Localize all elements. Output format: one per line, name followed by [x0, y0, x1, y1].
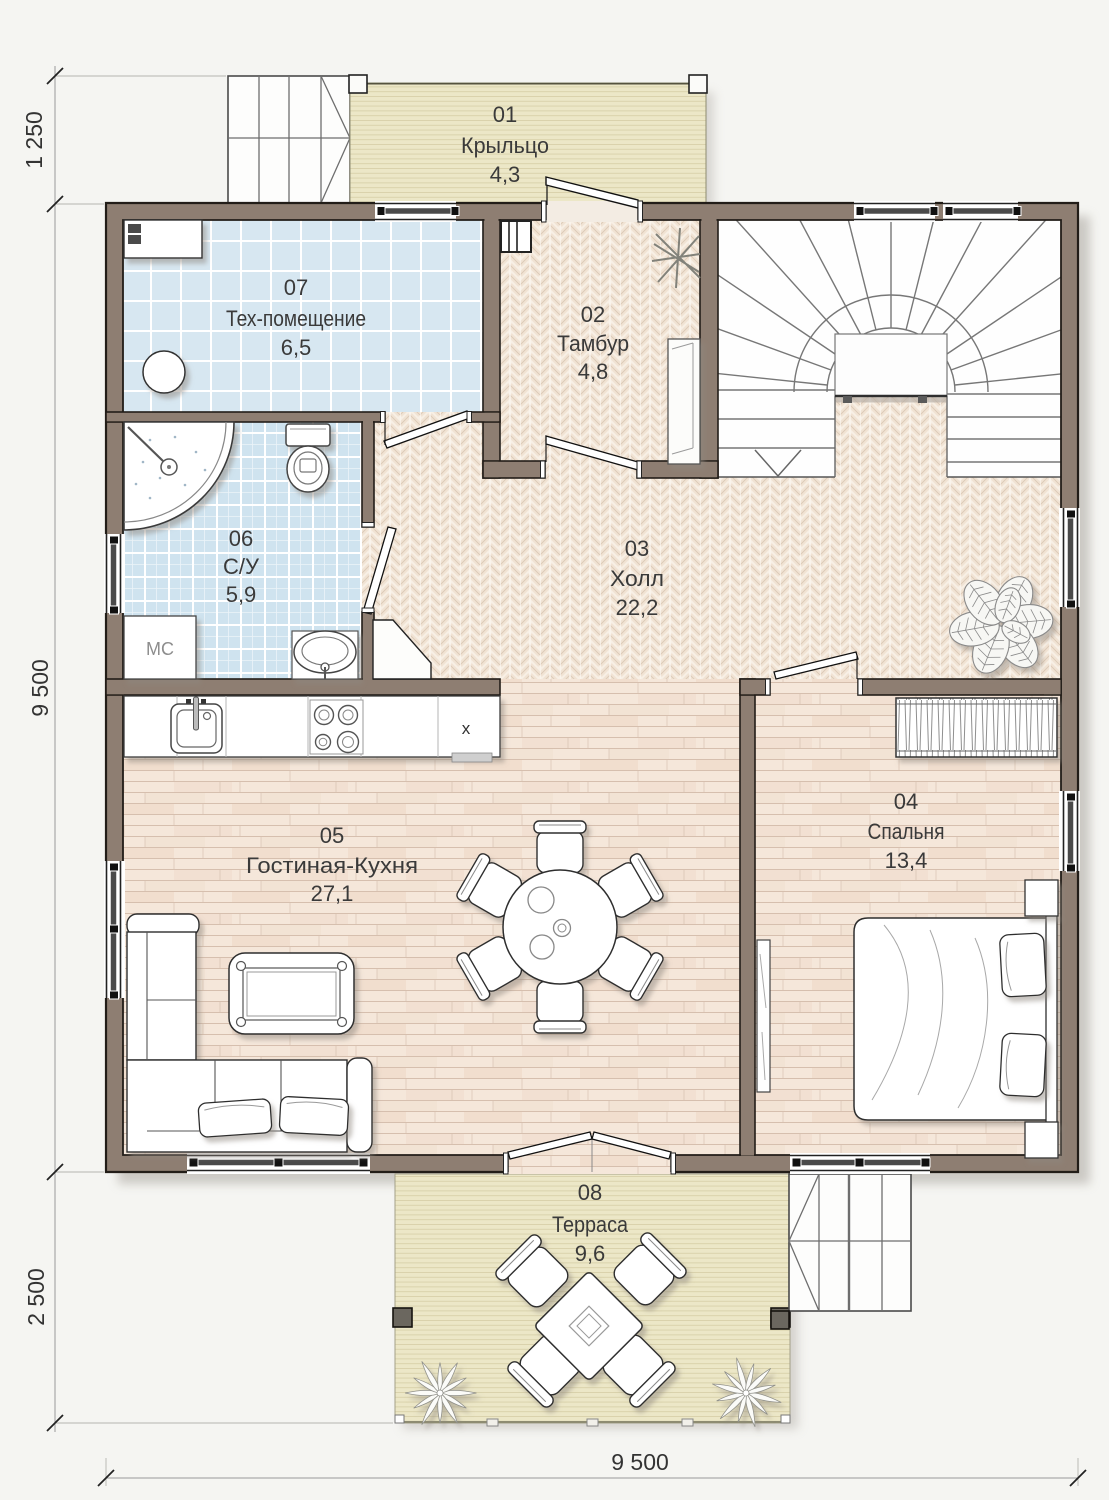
- svg-text:4,3: 4,3: [490, 162, 521, 187]
- svg-text:01: 01: [493, 102, 517, 127]
- svg-text:9,6: 9,6: [575, 1241, 606, 1266]
- svg-text:Холл: Холл: [610, 566, 664, 591]
- svg-text:9 500: 9 500: [611, 1449, 669, 1475]
- svg-text:04: 04: [894, 789, 918, 814]
- svg-text:05: 05: [320, 823, 344, 848]
- svg-text:Тамбур: Тамбур: [557, 331, 629, 356]
- svg-text:С/У: С/У: [223, 554, 260, 579]
- svg-text:22,2: 22,2: [616, 595, 659, 620]
- svg-text:Тех-помещение: Тех-помещение: [226, 306, 366, 331]
- svg-text:13,4: 13,4: [885, 848, 928, 873]
- svg-text:МС: МС: [146, 639, 174, 659]
- svg-text:6,5: 6,5: [281, 335, 312, 360]
- svg-text:9 500: 9 500: [27, 659, 53, 717]
- svg-text:2 500: 2 500: [23, 1268, 49, 1326]
- svg-text:06: 06: [229, 526, 253, 551]
- svg-text:27,1: 27,1: [311, 881, 354, 906]
- svg-text:07: 07: [284, 275, 308, 300]
- svg-text:03: 03: [625, 536, 649, 561]
- svg-text:02: 02: [581, 302, 605, 327]
- svg-text:x: x: [462, 719, 471, 738]
- svg-text:Терраса: Терраса: [552, 1212, 629, 1237]
- svg-text:1 250: 1 250: [21, 111, 47, 169]
- svg-text:4,8: 4,8: [578, 359, 609, 384]
- svg-text:Спальня: Спальня: [868, 819, 945, 844]
- svg-text:Гостиная-Кухня: Гостиная-Кухня: [246, 853, 418, 878]
- svg-text:08: 08: [578, 1180, 602, 1205]
- svg-text:Крыльцо: Крыльцо: [461, 133, 549, 158]
- svg-text:5,9: 5,9: [226, 582, 257, 607]
